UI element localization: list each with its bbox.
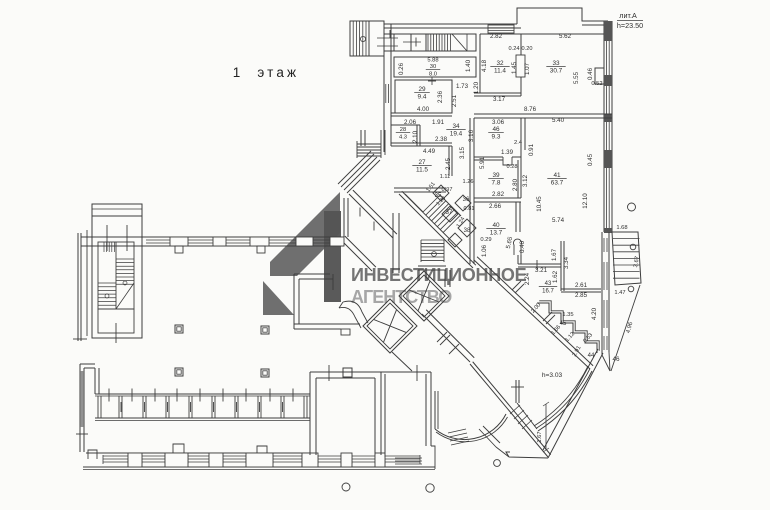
svg-text:0.52: 0.52 bbox=[591, 81, 602, 87]
svg-text:11.5: 11.5 bbox=[416, 167, 428, 174]
svg-text:1.67: 1.67 bbox=[537, 431, 543, 442]
svg-text:1.07: 1.07 bbox=[524, 62, 531, 75]
svg-text:8.0: 8.0 bbox=[429, 72, 437, 78]
svg-text:0.26: 0.26 bbox=[398, 62, 405, 75]
svg-text:63.7: 63.7 bbox=[551, 180, 564, 187]
svg-text:3.21: 3.21 bbox=[535, 267, 548, 274]
svg-text:3.12: 3.12 bbox=[522, 174, 529, 187]
svg-text:1.68: 1.68 bbox=[616, 225, 627, 231]
svg-text:0.29: 0.29 bbox=[480, 237, 491, 243]
svg-text:1.62: 1.62 bbox=[552, 270, 559, 283]
svg-text:40: 40 bbox=[492, 222, 500, 229]
svg-text:2.38: 2.38 bbox=[435, 136, 448, 143]
svg-text:5.55: 5.55 bbox=[573, 71, 580, 84]
svg-text:9.4: 9.4 bbox=[418, 94, 427, 101]
svg-text:33: 33 bbox=[552, 60, 560, 67]
svg-text:1.11: 1.11 bbox=[440, 174, 450, 180]
svg-text:2.10: 2.10 bbox=[412, 130, 419, 143]
svg-text:1.73: 1.73 bbox=[456, 83, 469, 90]
svg-text:30: 30 bbox=[430, 64, 436, 70]
svg-text:11.4: 11.4 bbox=[494, 68, 506, 75]
svg-text:0.97: 0.97 bbox=[442, 187, 453, 193]
svg-text:34: 34 bbox=[452, 123, 460, 130]
svg-text:1.06: 1.06 bbox=[481, 244, 488, 257]
svg-text:2.82: 2.82 bbox=[492, 191, 505, 198]
svg-text:45: 45 bbox=[560, 321, 567, 327]
svg-text:2.85: 2.85 bbox=[575, 292, 588, 299]
svg-text:13.7: 13.7 bbox=[490, 230, 503, 237]
svg-text:1.20: 1.20 bbox=[473, 81, 480, 94]
svg-text:h=23.50: h=23.50 bbox=[617, 21, 643, 30]
svg-text:4.20: 4.20 bbox=[591, 307, 598, 320]
svg-text:1.67: 1.67 bbox=[551, 248, 558, 261]
svg-text:0.20: 0.20 bbox=[522, 46, 533, 52]
svg-text:1 этаж: 1 этаж bbox=[233, 65, 300, 80]
svg-text:1.45: 1.45 bbox=[511, 61, 518, 74]
svg-text:1.26: 1.26 bbox=[463, 179, 474, 185]
svg-text:2.45: 2.45 bbox=[445, 157, 452, 170]
svg-text:16.7: 16.7 bbox=[542, 289, 554, 295]
svg-text:2.66: 2.66 bbox=[489, 203, 502, 210]
svg-text:12.10: 12.10 bbox=[582, 193, 589, 209]
svg-text:5.91: 5.91 bbox=[479, 156, 486, 169]
svg-text:2.24: 2.24 bbox=[524, 272, 531, 285]
svg-text:8.76: 8.76 bbox=[524, 106, 537, 113]
svg-text:0.46: 0.46 bbox=[587, 67, 594, 80]
svg-text:0.45: 0.45 bbox=[587, 153, 594, 166]
svg-text:44: 44 bbox=[588, 353, 595, 359]
svg-text:10.45: 10.45 bbox=[536, 196, 543, 212]
svg-text:3.17: 3.17 bbox=[493, 96, 506, 103]
svg-text:46: 46 bbox=[492, 126, 500, 133]
svg-text:4.49: 4.49 bbox=[423, 148, 436, 155]
svg-text:5.88: 5.88 bbox=[427, 58, 438, 64]
svg-text:2.51: 2.51 bbox=[451, 94, 458, 107]
svg-text:27: 27 bbox=[418, 159, 426, 166]
svg-text:39: 39 bbox=[492, 172, 500, 179]
svg-text:1.40: 1.40 bbox=[465, 59, 472, 72]
svg-text:0.28: 0.28 bbox=[507, 164, 518, 170]
svg-text:0.24: 0.24 bbox=[509, 46, 520, 52]
svg-text:2.82: 2.82 bbox=[490, 33, 503, 40]
svg-text:1.91: 1.91 bbox=[432, 119, 445, 126]
svg-text:лит.А: лит.А bbox=[619, 11, 637, 20]
svg-text:1.47: 1.47 bbox=[614, 290, 625, 296]
svg-text:1.39: 1.39 bbox=[501, 149, 514, 156]
svg-text:29: 29 bbox=[418, 86, 426, 93]
svg-text:4.00: 4.00 bbox=[417, 106, 430, 113]
svg-text:3.34: 3.34 bbox=[563, 256, 570, 269]
svg-text:h=3.03: h=3.03 bbox=[542, 372, 563, 379]
svg-text:28: 28 bbox=[400, 127, 406, 133]
svg-text:ИНВЕСТИЦИОННОЕ: ИНВЕСТИЦИОННОЕ bbox=[351, 265, 527, 285]
svg-text:0.91: 0.91 bbox=[528, 143, 535, 156]
svg-text:4.18: 4.18 bbox=[481, 59, 488, 72]
svg-text:5.40: 5.40 bbox=[552, 117, 565, 124]
svg-text:3.06: 3.06 bbox=[492, 119, 505, 126]
svg-text:30.7: 30.7 bbox=[550, 68, 563, 75]
svg-text:38: 38 bbox=[464, 228, 471, 234]
svg-text:43: 43 bbox=[545, 281, 552, 287]
svg-text:9.3: 9.3 bbox=[492, 134, 501, 141]
svg-text:5.62: 5.62 bbox=[559, 33, 572, 40]
svg-text:1.35: 1.35 bbox=[562, 312, 573, 318]
svg-text:7.8: 7.8 bbox=[492, 180, 501, 187]
svg-text:32: 32 bbox=[496, 60, 504, 67]
svg-text:0.40: 0.40 bbox=[519, 240, 526, 253]
svg-text:41: 41 bbox=[553, 172, 561, 179]
svg-text:2.36: 2.36 bbox=[437, 90, 444, 103]
svg-text:4.3: 4.3 bbox=[399, 135, 407, 141]
svg-text:3.15: 3.15 bbox=[459, 146, 466, 159]
svg-text:2.80: 2.80 bbox=[512, 178, 519, 191]
svg-text:19.4: 19.4 bbox=[450, 131, 463, 138]
svg-text:5.74: 5.74 bbox=[552, 217, 565, 224]
svg-text:2.61: 2.61 bbox=[575, 282, 588, 289]
